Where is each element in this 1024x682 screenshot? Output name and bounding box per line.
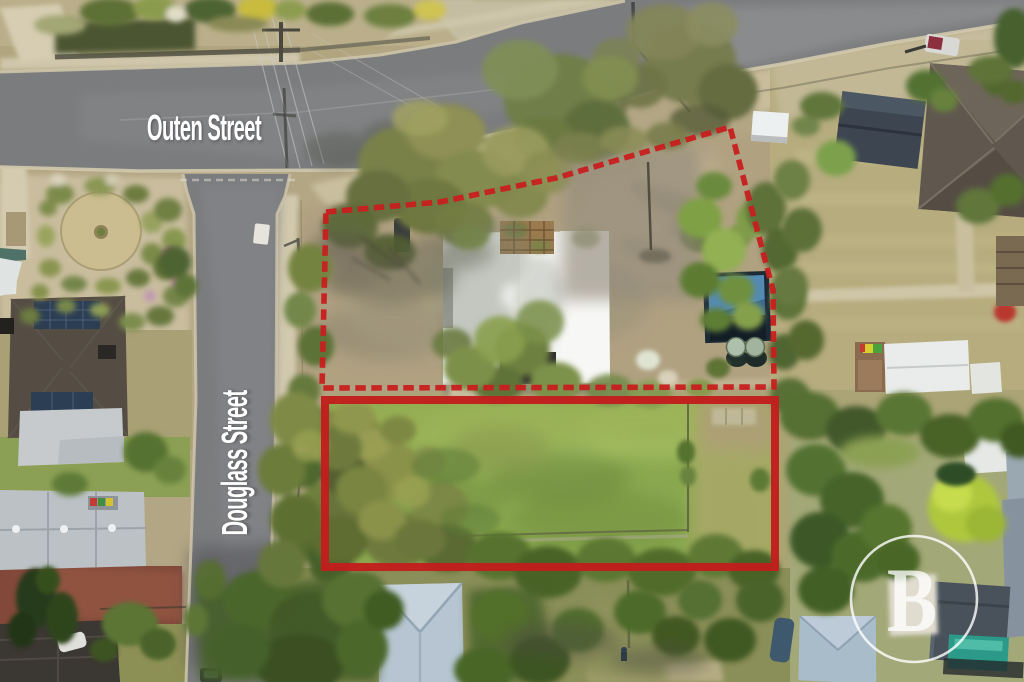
svg-text:Outen Street: Outen Street [147, 109, 262, 148]
svg-text:B: B [887, 550, 937, 652]
svg-text:Douglass Street: Douglass Street [216, 390, 255, 536]
